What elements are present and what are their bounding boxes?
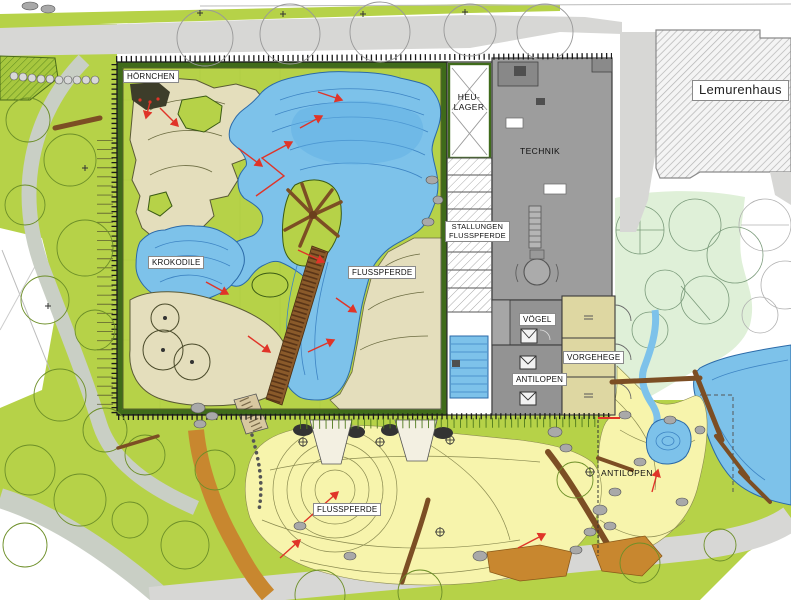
label-flusspferde-halle: FLUSSPFERDE	[348, 266, 416, 279]
label-vorgehege: VORGEHEGE	[563, 351, 624, 364]
label-technik: TECHNIK	[520, 146, 560, 156]
label-antilopen-stall: ANTILOPEN	[512, 373, 567, 386]
label-heu-lager: HEU- LAGER	[449, 92, 489, 112]
tank	[524, 259, 550, 285]
antelope-pond	[646, 419, 691, 464]
plan-drawing	[0, 0, 791, 600]
label-stallungen-flusspferde: STALLUNGEN FLUSSPFERDE	[445, 221, 510, 242]
hatch-window-icon	[520, 356, 536, 369]
label-antilopen-anlage: ANTILOPEN	[601, 468, 653, 478]
technik-building	[492, 58, 612, 300]
label-krokodile: KROKODILE	[148, 256, 204, 269]
zoo-site-plan: HÖRNCHEN HEU- LAGER TECHNIK STALLUNGEN F…	[0, 0, 791, 600]
hatch-window-icon	[520, 392, 536, 405]
hatch-window-icon	[521, 329, 537, 343]
label-hoernchen: HÖRNCHEN	[123, 70, 179, 83]
label-lemurenhaus: Lemurenhaus	[692, 80, 789, 101]
label-flusspferde-anlage: FLUSSPFERDE	[313, 503, 381, 516]
label-voegel: VÖGEL	[519, 313, 556, 326]
